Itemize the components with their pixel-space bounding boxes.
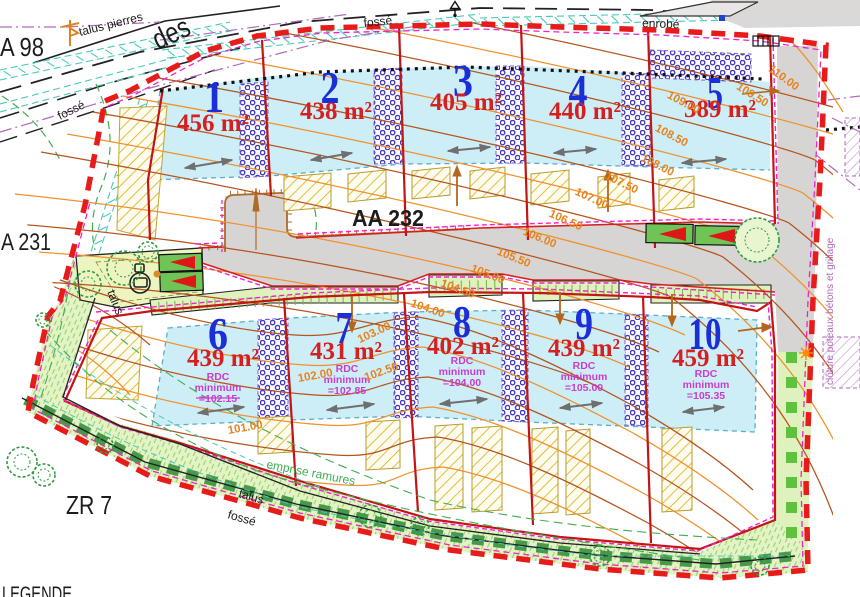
svg-text:431 m²: 431 m² [310,338,382,365]
svg-text:=104.00: =104.00 [443,377,481,389]
svg-text:clôture poteaux bétons et gri: clôture poteaux bétons et grillage [825,237,836,385]
svg-text:AA 232: AA 232 [352,205,424,231]
svg-text:456 m²: 456 m² [177,110,249,137]
svg-text:439 m²: 439 m² [187,345,259,372]
svg-text:=102.15: =102.15 [199,393,237,405]
svg-text:405 m²: 405 m² [430,89,502,116]
svg-text:=105.35: =105.35 [687,390,725,402]
svg-text:A 231: A 231 [1,229,51,256]
svg-text:=102.85: =102.85 [328,385,366,397]
svg-text:438 m²: 438 m² [300,98,372,125]
svg-text:439 m²: 439 m² [548,335,620,362]
svg-text:ZR 7: ZR 7 [66,490,112,520]
svg-text:LEGENDE: LEGENDE [2,583,72,597]
svg-text:A 98: A 98 [0,32,44,62]
svg-text:440 m²: 440 m² [549,98,621,125]
svg-text:=105.00: =105.00 [565,382,603,394]
svg-text:enrobé: enrobé [642,16,680,31]
